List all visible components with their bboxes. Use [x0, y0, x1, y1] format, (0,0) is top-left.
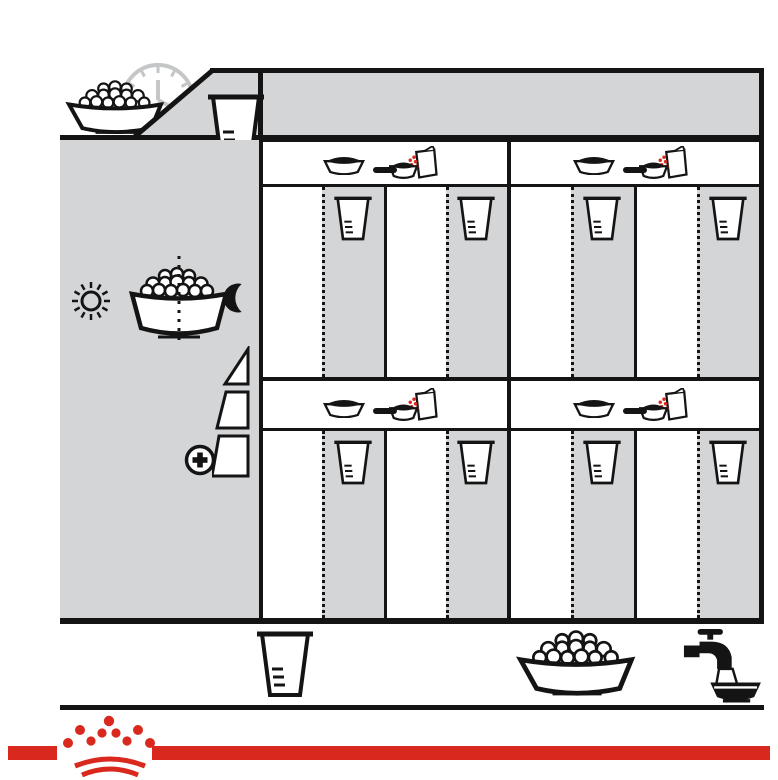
or-tab	[373, 167, 397, 173]
measuring-cup-icon	[708, 195, 748, 243]
pouch-bowl-icon	[389, 146, 439, 182]
cup-header	[322, 193, 383, 245]
measuring-cup-icon	[456, 439, 496, 487]
mixed-ration-cell	[634, 431, 760, 618]
glass-cup-icon	[255, 629, 315, 701]
measuring-cup-icon	[333, 439, 373, 487]
cup-header	[322, 437, 383, 489]
measuring-cup-icon	[208, 97, 264, 142]
weight-group-header	[263, 381, 507, 431]
weight-group-3kg	[511, 140, 759, 377]
weight-group-header	[511, 140, 759, 187]
footer-rule-bottom	[60, 705, 764, 710]
weight-header-band	[60, 66, 764, 142]
water-tap-icon	[678, 627, 762, 703]
pouch-bowl-icon	[639, 146, 689, 182]
bowl-icon	[571, 395, 617, 418]
footer-info-row	[60, 624, 764, 705]
activity-sidebar	[60, 140, 259, 618]
table-border-right	[759, 70, 764, 624]
weight-group-header	[263, 140, 507, 187]
bowl-icon	[321, 152, 367, 175]
or-tab	[623, 408, 647, 414]
bowl-icon	[571, 152, 617, 175]
bowl-icon	[321, 395, 367, 418]
royal-canin-crown-logo	[55, 712, 170, 780]
measuring-cup-icon	[582, 195, 622, 243]
measuring-cup-icon	[333, 195, 373, 243]
cup-header	[697, 193, 759, 245]
cup-header	[571, 437, 633, 489]
cup-header	[697, 437, 759, 489]
mixed-ration-cell	[634, 187, 760, 377]
cup-header	[446, 193, 507, 245]
pouch-bowl-icon	[639, 388, 689, 424]
mixed-ration-cell	[384, 431, 508, 618]
or-tab	[373, 408, 397, 414]
weight-group-6kg	[263, 381, 507, 618]
dry-ration-cell	[511, 187, 634, 377]
measuring-cup-icon	[708, 439, 748, 487]
weight-group-header	[511, 381, 759, 431]
kibble-bowl-icon	[512, 630, 640, 698]
brand-divider-right	[152, 746, 770, 760]
plus-circle-icon	[183, 443, 217, 477]
activity-level-vertical-label	[62, 288, 92, 620]
moon-icon	[222, 282, 250, 314]
sun-icon	[68, 278, 114, 324]
measuring-cup-icon	[582, 439, 622, 487]
mixed-ration-cell	[384, 187, 508, 377]
cup-header	[446, 437, 507, 489]
dry-ration-cell	[263, 431, 384, 618]
measuring-cup-icon	[456, 195, 496, 243]
pouch-bowl-icon	[389, 388, 439, 424]
dry-ration-cell	[511, 431, 634, 618]
weight-group-10kg	[511, 381, 759, 618]
or-tab	[623, 167, 647, 173]
half-bowl-icon	[124, 256, 234, 348]
brand-divider-left	[8, 746, 57, 760]
weight-group-1kg	[263, 140, 507, 377]
dry-ration-cell	[263, 187, 384, 377]
cup-header	[571, 193, 633, 245]
activity-scale-icon	[212, 346, 258, 492]
